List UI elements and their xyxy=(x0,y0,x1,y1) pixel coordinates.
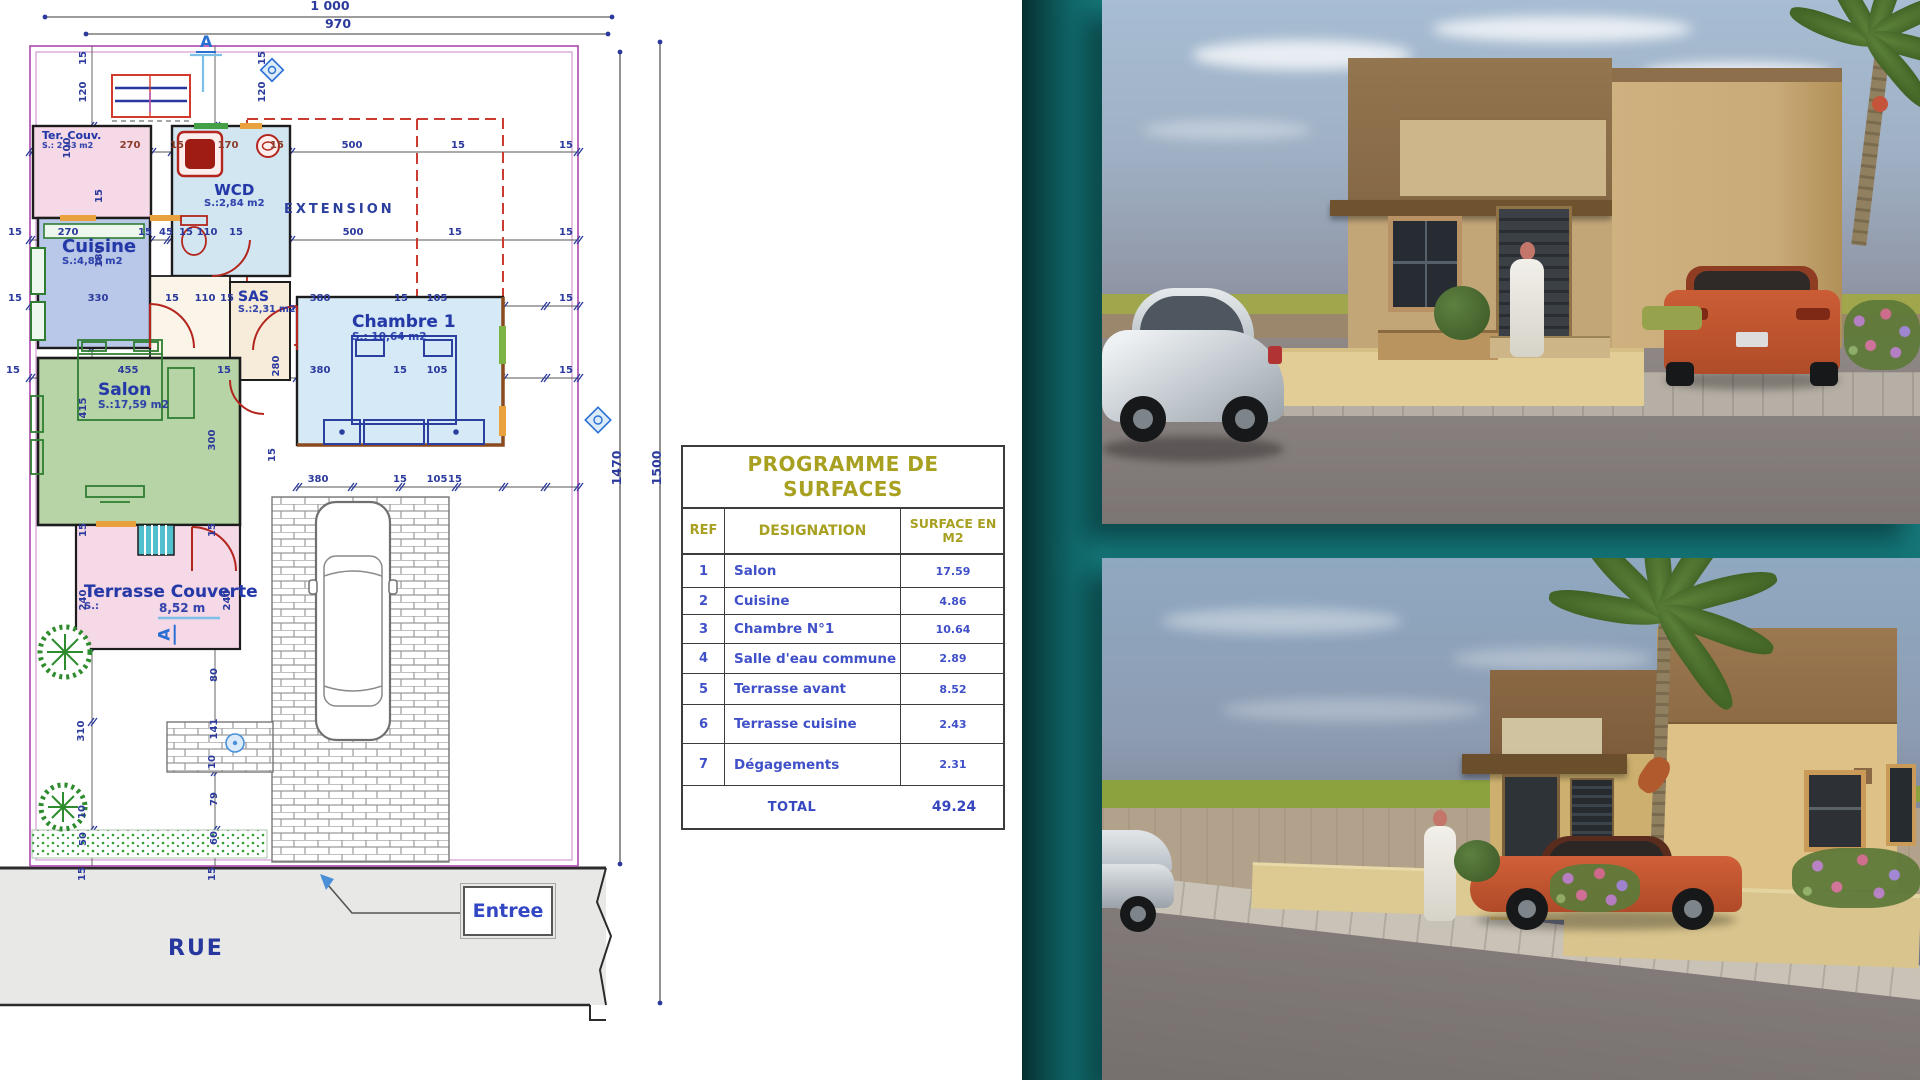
room-label-chambre1: Chambre 1 S.: 10,64 m2 xyxy=(352,314,456,343)
dim-label: 15 xyxy=(559,228,573,238)
entrance-label-box: Entree xyxy=(463,886,553,936)
dim-label: 120 xyxy=(258,82,268,103)
dim-label: 15 xyxy=(559,366,573,376)
table-row: 1Salon17.59 xyxy=(683,555,1003,588)
person-figure xyxy=(1424,810,1456,922)
cell-ref: 2 xyxy=(683,588,725,614)
dim-label: 15 xyxy=(258,51,268,65)
table-row: 4Salle d'eau commune2.89 xyxy=(683,644,1003,674)
dim-label: 15 xyxy=(208,523,218,537)
dim-label: 15 xyxy=(79,51,89,65)
room-label-extension: EXTENSION xyxy=(284,202,395,217)
table-row: 2Cuisine4.86 xyxy=(683,588,1003,615)
dim-label: 80 xyxy=(210,668,220,682)
cell-ref: 6 xyxy=(683,705,725,743)
dim-label: 15 xyxy=(138,228,152,238)
section-marker-a-bottom: A xyxy=(155,624,176,644)
dim-label: 330 xyxy=(88,294,109,304)
cell-designation: Terrasse avant xyxy=(725,674,901,704)
planter xyxy=(1378,330,1498,360)
cell-surface: 2.31 xyxy=(901,744,1005,785)
room-label-salon: Salon S.:17,59 m2 xyxy=(98,382,169,411)
entry-steps xyxy=(1490,336,1610,358)
dim-label: 15 xyxy=(229,228,243,238)
dim-label: 60 xyxy=(210,831,220,845)
cell-surface: 2.89 xyxy=(901,644,1005,673)
table-row: 7Dégagements2.31 xyxy=(683,744,1003,786)
table-title: PROGRAMME DE SURFACES xyxy=(683,447,1003,509)
table-row: 5Terrasse avant8.52 xyxy=(683,674,1003,705)
dim-label: 270 xyxy=(58,228,79,238)
total-value: 49.24 xyxy=(901,786,1007,828)
dim-label: 15 xyxy=(270,141,284,151)
section-marker-a-top: A xyxy=(196,32,216,53)
dim-label: 15 xyxy=(559,294,573,304)
dim-label: 10 xyxy=(208,755,218,769)
facade-panel xyxy=(1400,118,1606,196)
dim-label: 415 xyxy=(79,398,89,419)
grass-horizon xyxy=(1102,780,1542,810)
dim-label: 310 xyxy=(77,721,87,742)
cell-surface: 10.64 xyxy=(901,615,1005,643)
dim-label: 15 xyxy=(79,523,89,537)
pergola-structure xyxy=(112,55,222,121)
header-designation: DESIGNATION xyxy=(725,509,901,553)
dim-label: 110 xyxy=(197,228,218,238)
dim-label: 380 xyxy=(308,475,329,485)
architectural-sheet: Ter. Couv. S.: 2,43 m2 WCD S.:2,84 m2 Cu… xyxy=(0,0,1920,1080)
cell-designation: Cuisine xyxy=(725,588,901,614)
dim-label: 105 xyxy=(427,475,448,485)
dim-label: 50 xyxy=(79,832,89,846)
cell-designation: Dégagements xyxy=(725,744,901,785)
bush xyxy=(1454,840,1500,882)
flower-bed-center xyxy=(1550,864,1640,912)
dim-label: 380 xyxy=(310,366,331,376)
entrance-label: Entree xyxy=(473,900,544,922)
dim-label: 970 xyxy=(325,18,351,31)
dim-label: 15 xyxy=(220,294,234,304)
dim-label: 15 xyxy=(217,366,231,376)
dim-label: 500 xyxy=(342,141,363,151)
cell-ref: 5 xyxy=(683,674,725,704)
floor-plan-page: Ter. Couv. S.: 2,43 m2 WCD S.:2,84 m2 Cu… xyxy=(0,0,1022,1080)
cell-surface: 2.43 xyxy=(901,705,1005,743)
cell-surface: 4.86 xyxy=(901,588,1005,614)
dim-label: 110 xyxy=(195,294,216,304)
table-total-row: TOTAL 49.24 xyxy=(683,786,1003,828)
dim-label: 141 xyxy=(210,719,220,740)
dim-label: 15 xyxy=(393,366,407,376)
dim-label: 300 xyxy=(208,430,218,451)
surface-program-table: PROGRAMME DE SURFACES REF DESIGNATION SU… xyxy=(681,445,1005,830)
dim-label: 100 xyxy=(63,138,73,159)
table-header: REF DESIGNATION SURFACE EN M2 xyxy=(683,509,1003,555)
cell-surface: 8.52 xyxy=(901,674,1005,704)
cell-designation: Salon xyxy=(725,555,901,587)
dim-label: 15 xyxy=(170,141,184,151)
person-figure xyxy=(1510,242,1544,358)
dim-label: 15 xyxy=(8,294,22,304)
dim-label: 15 xyxy=(8,228,22,238)
room-label-wcd: WCD S.:2,84 m2 xyxy=(204,183,265,209)
cell-designation: Terrasse cuisine xyxy=(725,705,901,743)
dim-label: 105 xyxy=(427,366,448,376)
dim-label: 45 xyxy=(159,228,173,238)
dim-label: 15 xyxy=(268,448,278,462)
cell-surface: 17.59 xyxy=(901,555,1005,587)
dim-label: 15 xyxy=(6,366,20,376)
silver-car xyxy=(1102,288,1284,468)
dim-label: 280 xyxy=(272,356,282,377)
dim-label: 170 xyxy=(218,141,239,151)
dim-label: 15 xyxy=(394,294,408,304)
dim-label: 240 xyxy=(223,590,233,611)
dim-label: 15 xyxy=(165,294,179,304)
dim-label: 15 xyxy=(448,475,462,485)
dim-label: 1500 xyxy=(651,451,664,486)
cell-ref: 3 xyxy=(683,615,725,643)
bush xyxy=(1434,286,1490,340)
room-label-sas: SAS S.:2,31 m2 xyxy=(238,290,296,315)
render-perspective-view xyxy=(1102,558,1920,1080)
dim-label: 180 xyxy=(95,247,105,268)
cell-ref: 4 xyxy=(683,644,725,673)
grass-patch xyxy=(1642,306,1702,330)
cell-ref: 1 xyxy=(683,555,725,587)
flower-bed xyxy=(1844,300,1920,370)
dim-label: 15 xyxy=(559,141,573,151)
flower-bed-right xyxy=(1792,848,1920,908)
table-row: 6Terrasse cuisine2.43 xyxy=(683,705,1003,744)
dim-label: 15 xyxy=(208,867,218,881)
cell-designation: Salle d'eau commune xyxy=(725,644,901,673)
table-body: 1Salon17.592Cuisine4.863Chambre N°110.64… xyxy=(683,555,1003,786)
dim-label: 380 xyxy=(310,294,331,304)
dim-label: 79 xyxy=(210,792,220,806)
dim-label: 15 xyxy=(95,189,105,203)
dim-label: 15 xyxy=(393,475,407,485)
dim-label: 15 xyxy=(448,228,462,238)
dim-label: 15 xyxy=(451,141,465,151)
dim-label: 1 000 xyxy=(310,0,349,12)
dim-label: 270 xyxy=(120,141,141,151)
header-surface: SURFACE EN M2 xyxy=(901,509,1005,553)
street-label: RUE xyxy=(168,936,224,961)
dim-label: 120 xyxy=(79,82,89,103)
dim-label: 500 xyxy=(343,228,364,238)
total-label: TOTAL xyxy=(683,786,901,828)
stairs xyxy=(138,525,174,555)
car-top-view xyxy=(309,502,397,740)
header-ref: REF xyxy=(683,509,725,553)
cell-ref: 7 xyxy=(683,744,725,785)
palm-tree xyxy=(1802,0,1920,250)
grass-strip xyxy=(32,830,267,858)
dim-label: 1470 xyxy=(611,451,624,486)
cell-designation: Chambre N°1 xyxy=(725,615,901,643)
silver-car-partial xyxy=(1102,830,1174,934)
dim-label: 10 xyxy=(78,805,88,819)
render-front-view xyxy=(1102,0,1920,524)
dim-label: 105 xyxy=(427,294,448,304)
dim-label: 455 xyxy=(118,366,139,376)
table-row: 3Chambre N°110.64 xyxy=(683,615,1003,644)
dim-label: 15 xyxy=(179,228,193,238)
dim-label: 15 xyxy=(78,867,88,881)
dim-label: 240 xyxy=(79,590,89,611)
